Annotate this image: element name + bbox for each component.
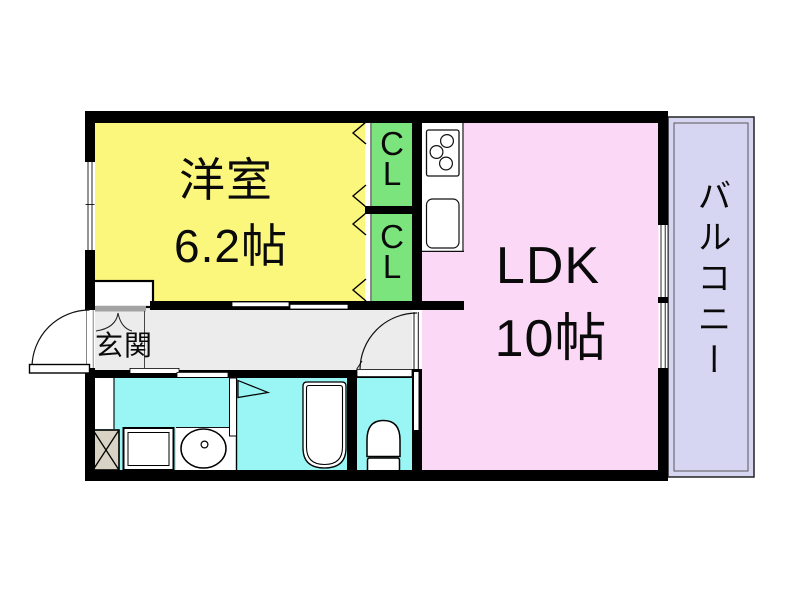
western-room-area-label: 6.2帖: [95, 210, 367, 276]
toilet-tank: [368, 458, 400, 472]
western-room-label: 洋室: [95, 144, 357, 210]
sliding-door-sill: [177, 372, 228, 377]
entrance-step: [93, 306, 146, 312]
closet-lower-label: C L: [372, 222, 412, 282]
sliding-door-sill: [130, 368, 179, 373]
wall-top: [85, 111, 668, 123]
balcony-label: バルコニー: [687, 178, 736, 383]
entrance-alcove-box: [93, 281, 153, 307]
wall-closet-separator: [365, 206, 412, 214]
wall-left: [85, 250, 95, 310]
sliding-door-sill: [232, 302, 289, 307]
stove-burner-icon: [441, 135, 454, 148]
wall-bath-toilet: [347, 378, 357, 470]
wall-right: [658, 111, 668, 225]
bathtub-icon: [303, 382, 346, 468]
washbasin-faucet-icon: [201, 441, 208, 448]
floor-plan: 洋室 6.2帖 LDK 10帖 玄関 バルコニー C L C L: [0, 0, 800, 600]
closet-letter: L: [372, 252, 412, 282]
sliding-door-sill: [290, 304, 348, 309]
wall-gap-strip: [414, 372, 419, 430]
washing-machine-icon: [124, 428, 174, 470]
ldk-label: LDK: [428, 236, 668, 296]
stove-burner-icon: [440, 157, 453, 170]
toilet-icon: [367, 421, 400, 457]
floor-plan-drawing: [0, 0, 800, 600]
wall-ldk-west: [412, 111, 422, 301]
stove-burner-icon: [430, 146, 443, 159]
wall-bottom: [85, 470, 668, 481]
washbasin-icon: [181, 429, 226, 468]
wall-left: [85, 111, 95, 162]
entrance-label: 玄関: [93, 324, 155, 364]
closet-upper-label: C L: [372, 129, 412, 189]
wall-right: [658, 368, 668, 481]
wall-left: [85, 368, 95, 481]
closet-letter: L: [372, 159, 412, 189]
toilet-door-sill: [357, 369, 412, 376]
entrance-door-swing-arc: [32, 310, 90, 368]
window-icon: [86, 162, 95, 250]
ldk-area-label: 10帖: [428, 296, 674, 371]
entrance-door-leaf: [30, 365, 90, 374]
washroom-corner: [95, 378, 114, 429]
bath-door-leaf: [230, 378, 237, 436]
